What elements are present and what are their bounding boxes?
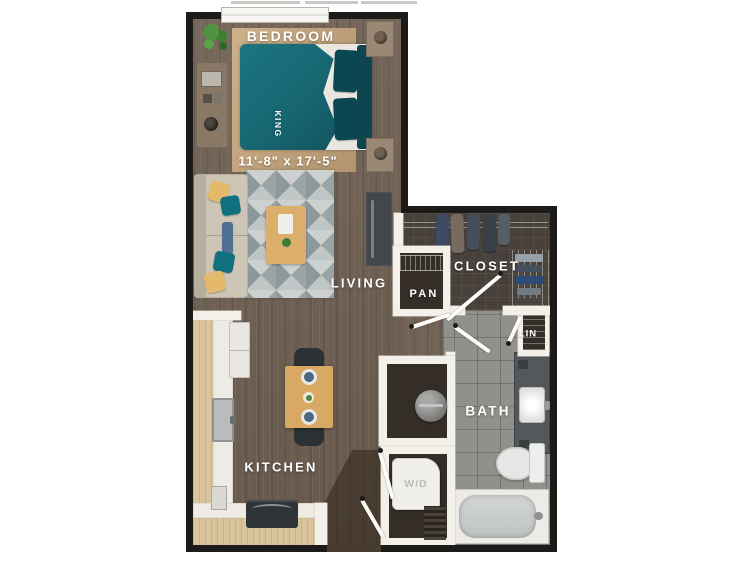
exterior-wall-right-lower xyxy=(550,206,557,552)
nightstand-lamp xyxy=(374,147,387,160)
plant xyxy=(203,24,219,40)
decor-box xyxy=(214,93,222,103)
sofa-cushion-blue xyxy=(222,222,233,254)
hanging-clothes xyxy=(466,214,480,250)
dishwasher xyxy=(211,486,227,510)
kitchen-faucet xyxy=(230,416,236,424)
bed-pillow xyxy=(333,97,359,140)
balcony-edge-mark xyxy=(231,1,300,4)
decor-box xyxy=(203,94,212,103)
coffee-table-plant xyxy=(282,238,291,247)
interior-wall xyxy=(503,306,550,315)
bed-headboard xyxy=(357,45,372,149)
folded-clothes xyxy=(517,288,541,295)
balcony-edge-mark xyxy=(305,1,358,4)
vanity-decor xyxy=(518,360,528,369)
picture-frame xyxy=(201,71,222,87)
folded-clothes xyxy=(515,276,543,284)
door-hinge xyxy=(453,323,458,328)
bedroom-window xyxy=(221,7,329,23)
dining-chair xyxy=(294,348,324,368)
laundry-rug xyxy=(424,506,446,540)
sofa-pillow-teal xyxy=(212,250,235,273)
bedroom-dimensions-label: 11'-8" x 17'-5" xyxy=(238,154,337,169)
bathtub xyxy=(459,495,536,538)
exterior-wall-left xyxy=(186,12,193,552)
tv-console xyxy=(366,192,392,266)
kitchen-label: KITCHEN xyxy=(244,460,317,475)
door-hinge xyxy=(506,341,511,346)
pantry-label: PAN xyxy=(409,288,438,300)
door-hinge xyxy=(498,271,503,276)
vanity-sink xyxy=(519,387,545,423)
bathtub-faucet xyxy=(534,512,543,520)
linen-label: LIN xyxy=(519,329,537,340)
centerpiece-plant xyxy=(306,395,312,401)
washer-dryer-label: W/D xyxy=(404,478,427,490)
hanging-clothes xyxy=(450,214,464,253)
door-hinge xyxy=(409,324,414,329)
water-heater-bar xyxy=(419,404,443,407)
decor-vase xyxy=(204,117,218,131)
entry-threshold xyxy=(327,545,381,552)
pantry-wire-shelf xyxy=(400,255,443,271)
floor-plan: KING BEDROOM 11'-8" x 17'-5" LIVING CLOS… xyxy=(0,0,747,563)
exterior-wall-bottom-left xyxy=(186,545,327,552)
range-handle xyxy=(252,504,292,514)
fridge-divider xyxy=(229,350,250,351)
balcony-edge-mark xyxy=(361,1,417,4)
exterior-wall-right-upper xyxy=(401,12,408,213)
closet-label: CLOSET xyxy=(454,259,520,274)
entry-wall-stub xyxy=(315,503,327,545)
exterior-wall-bottom-right xyxy=(381,545,557,552)
dining-chair xyxy=(294,426,324,446)
tv-screen xyxy=(371,200,374,258)
bed-label: KING xyxy=(273,110,283,137)
coffee-table-tray xyxy=(278,214,293,234)
place-setting xyxy=(301,409,317,425)
bed-pillow xyxy=(333,49,359,92)
sofa-pillow-teal xyxy=(220,195,242,217)
bedroom-label: BEDROOM xyxy=(247,28,336,44)
toilet-bowl xyxy=(496,447,533,480)
door-hinge xyxy=(360,496,365,501)
hanging-clothes xyxy=(497,214,510,245)
kitchen-wall-stub xyxy=(193,311,241,320)
exterior-wall-notch xyxy=(401,206,557,213)
hanging-clothes xyxy=(482,214,496,252)
door-hinge xyxy=(378,448,383,453)
interior-wall xyxy=(394,213,403,250)
place-setting xyxy=(301,369,317,385)
living-label: LIVING xyxy=(331,276,388,291)
nightstand-lamp xyxy=(374,31,387,44)
folded-clothes xyxy=(516,298,542,305)
toilet-tank xyxy=(529,443,545,483)
bath-label: BATH xyxy=(465,404,510,419)
